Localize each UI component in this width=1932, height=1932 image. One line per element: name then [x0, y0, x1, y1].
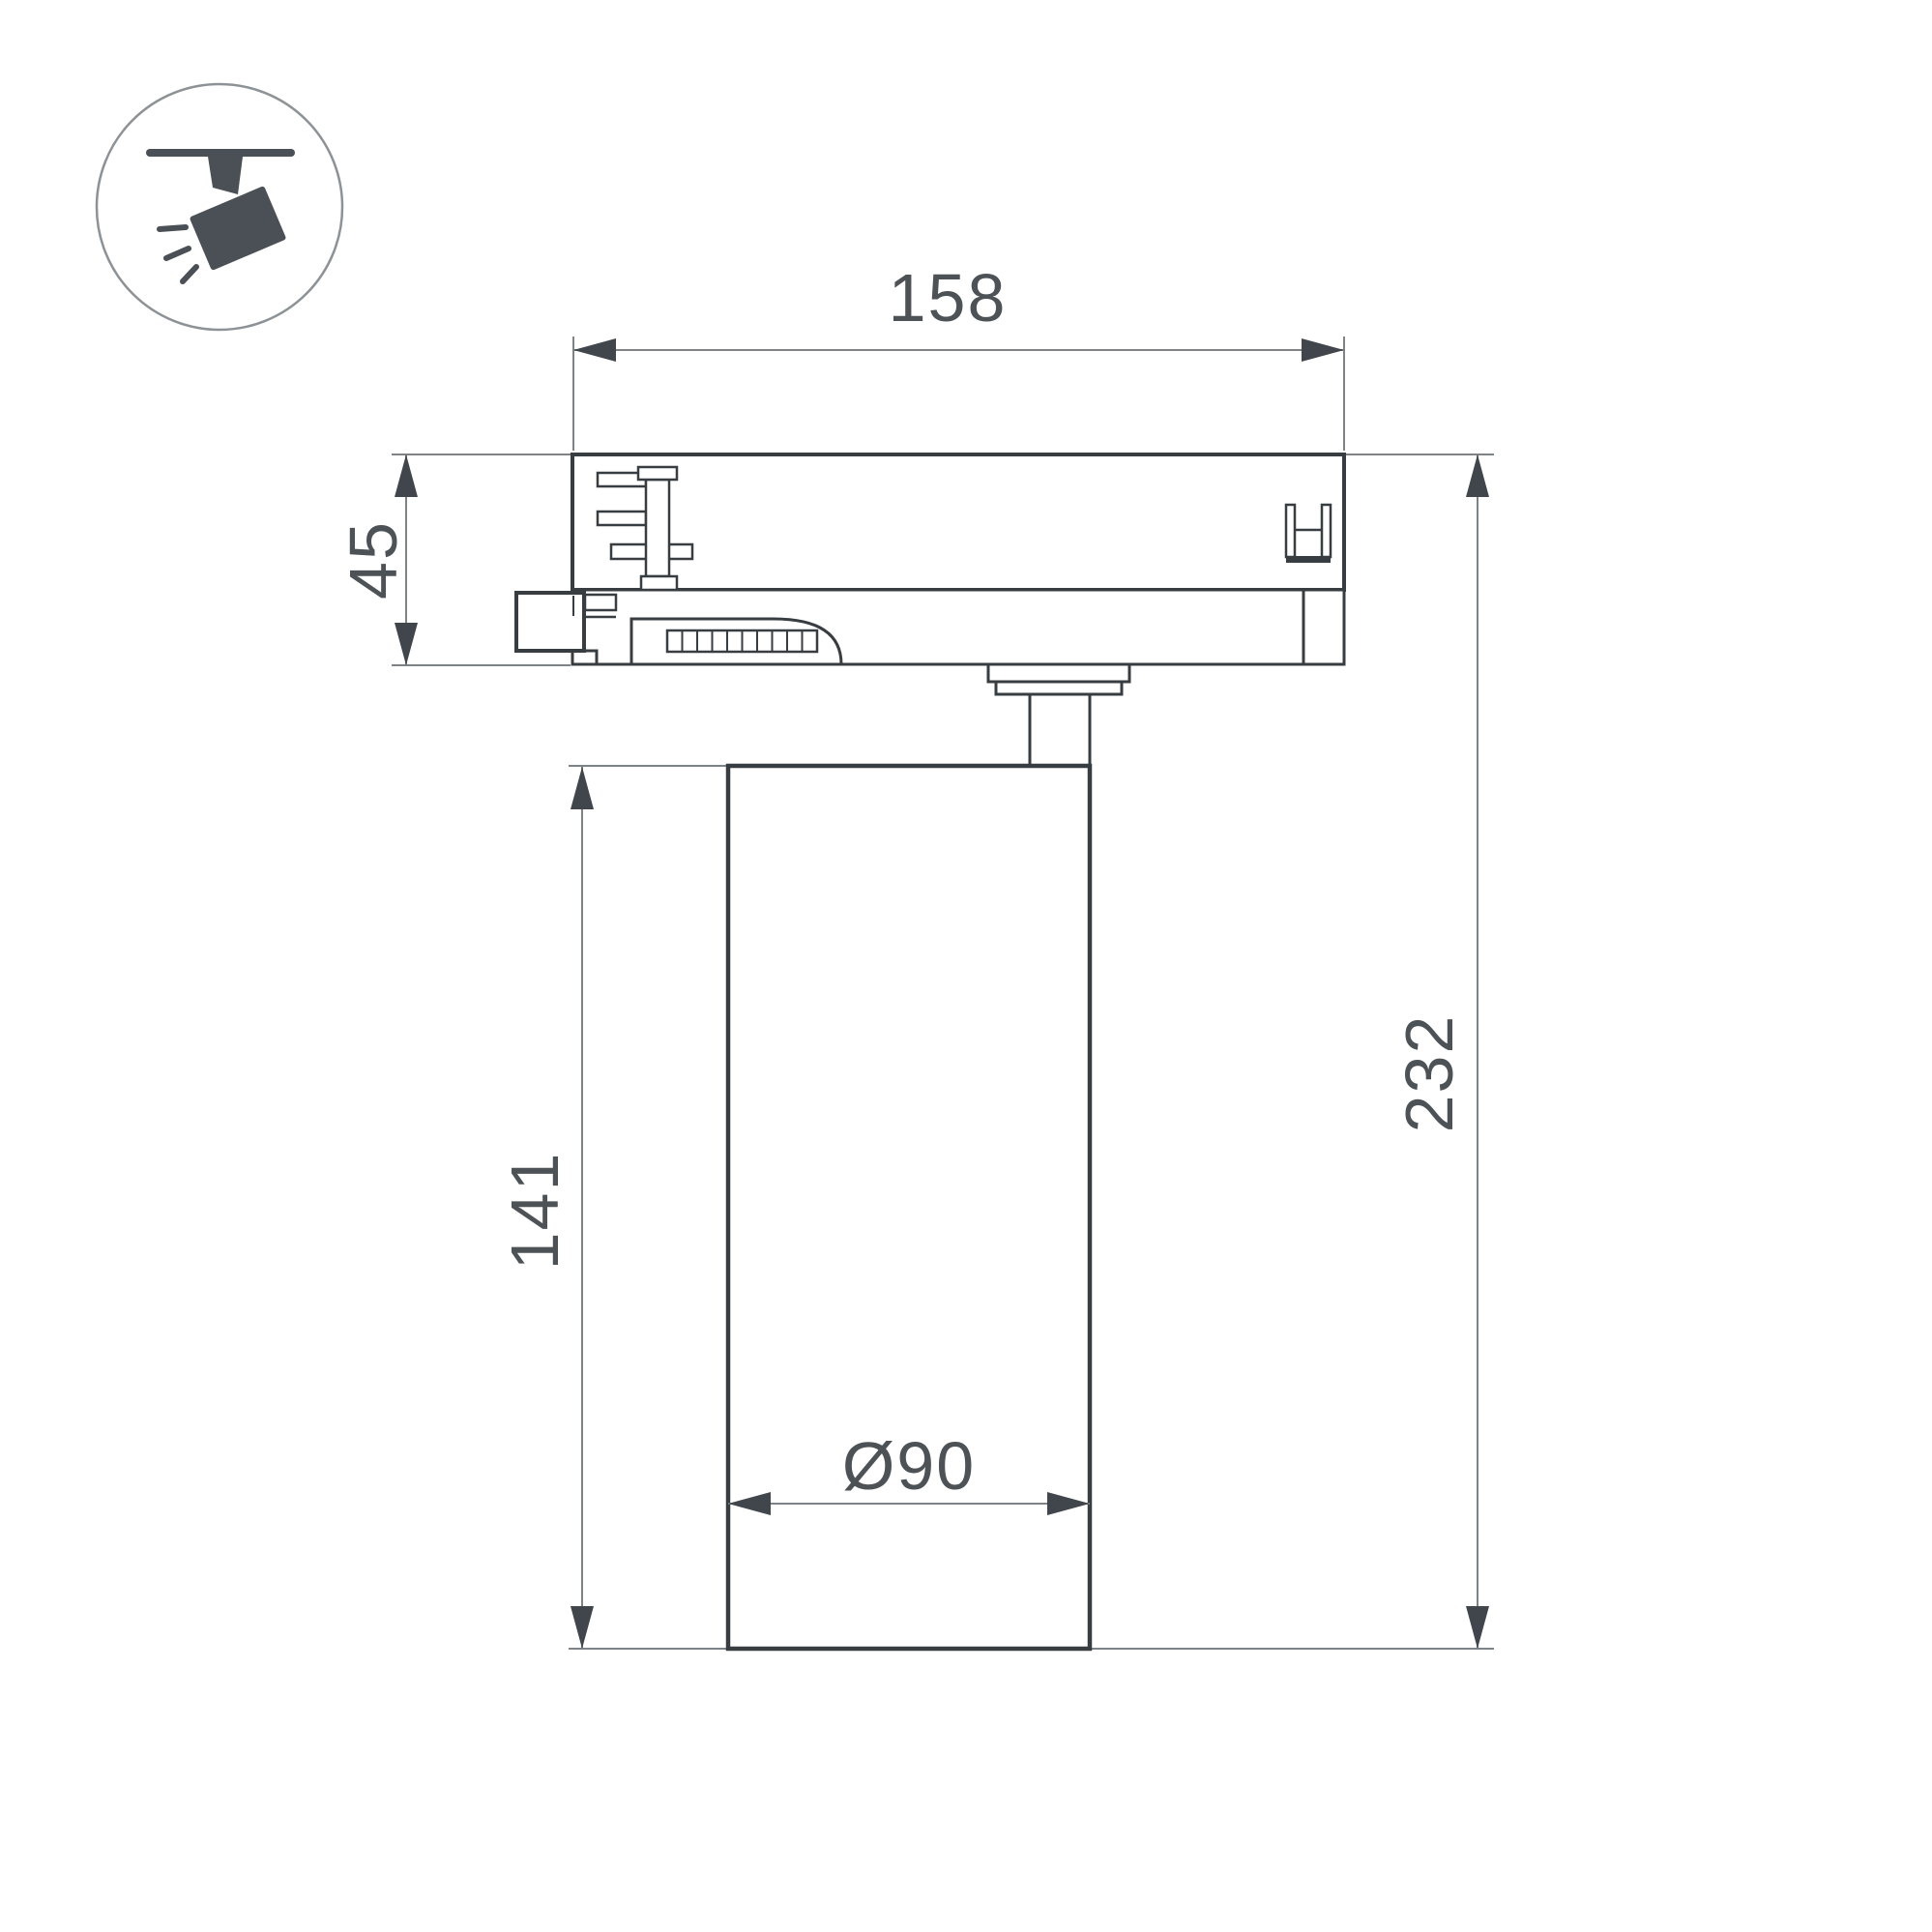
clamp-left-bar [1286, 505, 1295, 557]
adapter-upper-housing [572, 454, 1344, 590]
dim-body-height: 141 [497, 767, 594, 1649]
stem-step-1 [988, 664, 1129, 682]
contact-prong-2 [598, 512, 646, 525]
dim-label-body-diameter: Ø90 [842, 1428, 976, 1504]
arrowhead-45-bottom [395, 623, 418, 665]
arrowhead-158-left [573, 338, 616, 362]
icon-light-ray-1 [160, 227, 186, 229]
dim-label-body-height: 141 [497, 1152, 572, 1271]
dim-label-total-height: 232 [1391, 1014, 1467, 1133]
contact-rod [646, 480, 669, 576]
arrowhead-45-top [395, 454, 418, 497]
adapter-cover [631, 619, 841, 664]
dim-adapter-width: 158 [573, 260, 1344, 362]
technical-drawing-page: 158 45 141 232 Ø90 [0, 0, 1932, 1932]
track-spotlight-icon [97, 84, 342, 330]
arrowhead-232-bottom [1466, 1606, 1489, 1649]
clamp-bottom-bar [1286, 556, 1331, 563]
arrowhead-141-top [571, 767, 594, 809]
lamp-body-cylinder [728, 766, 1090, 1649]
dim-label-adapter-height: 45 [336, 520, 411, 600]
arrowhead-141-bottom [571, 1606, 594, 1649]
arrowhead-232-top [1466, 454, 1489, 497]
stem-shaft [1030, 694, 1090, 766]
dim-total-height: 232 [1391, 454, 1489, 1649]
clamp-right-bar [1322, 505, 1331, 557]
latch-notch [585, 595, 616, 610]
dim-adapter-height: 45 [336, 454, 418, 665]
dim-label-adapter-width: 158 [889, 260, 1008, 336]
pivot-stem [988, 664, 1129, 766]
arrowhead-158-right [1302, 338, 1344, 362]
contact-rod-cap [638, 467, 677, 480]
track-adapter [516, 454, 1344, 664]
stem-step-2 [996, 682, 1122, 694]
technical-drawing: 158 45 141 232 Ø90 [0, 0, 1932, 1932]
contact-rod-foot [641, 576, 677, 590]
